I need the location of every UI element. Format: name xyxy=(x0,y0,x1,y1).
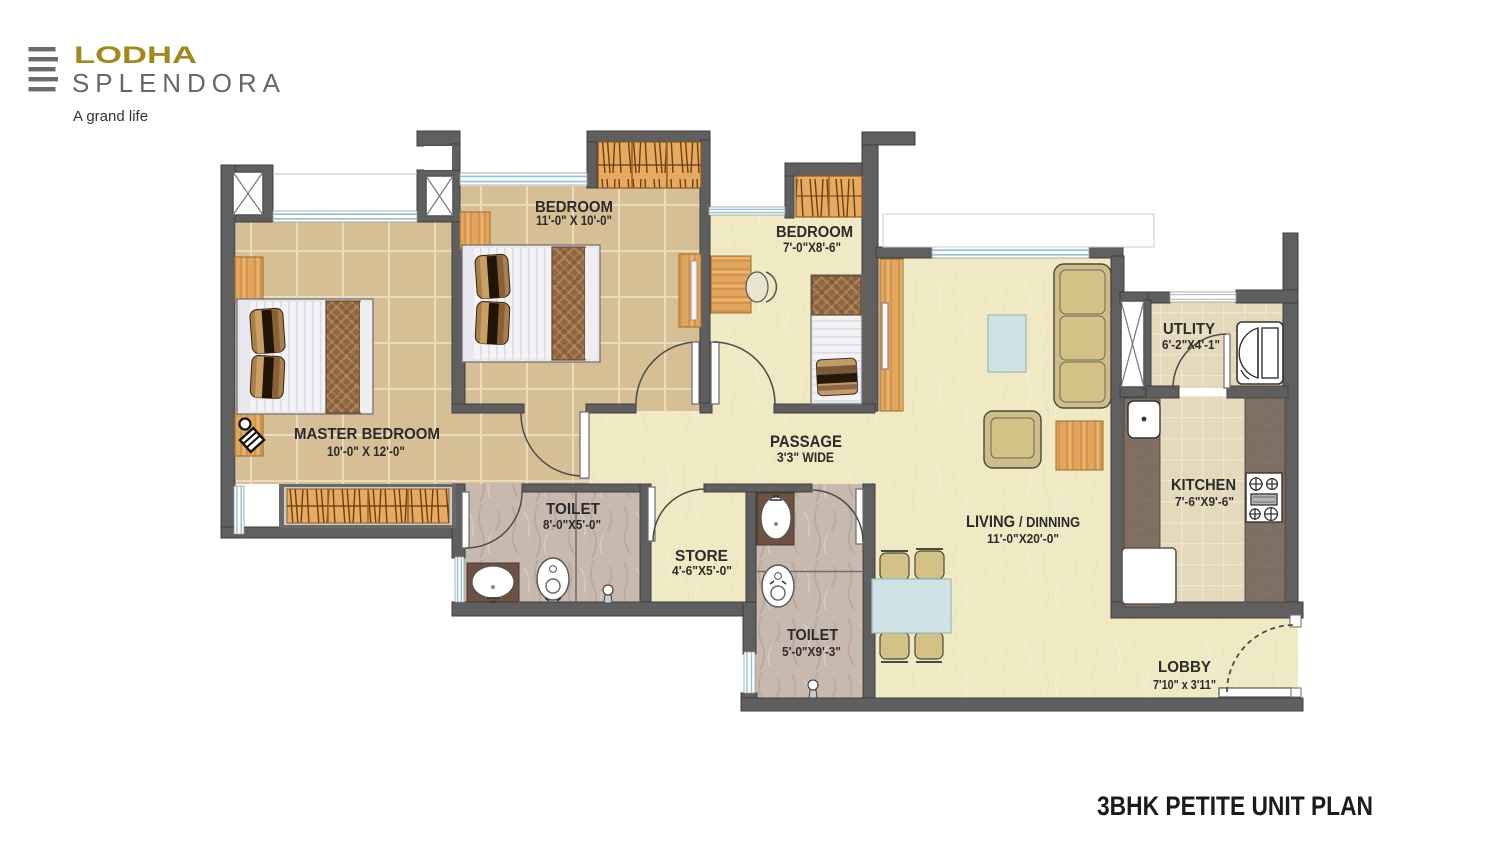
svg-text:TOILET: TOILET xyxy=(787,627,838,644)
svg-text:TOILET: TOILET xyxy=(546,501,600,518)
svg-text:11'-0" X 10'-0": 11'-0" X 10'-0" xyxy=(536,213,612,228)
svg-text:3'3" WIDE: 3'3" WIDE xyxy=(777,450,834,465)
svg-text:UTLITY: UTLITY xyxy=(1163,321,1216,338)
svg-text:5'-0"X9'-3": 5'-0"X9'-3" xyxy=(782,644,841,659)
svg-text:7'-6"X9'-6": 7'-6"X9'-6" xyxy=(1175,494,1234,509)
svg-text:3BHK PETITE UNIT PLAN: 3BHK PETITE UNIT PLAN xyxy=(1097,791,1373,821)
svg-text:LODHA: LODHA xyxy=(74,42,197,69)
svg-text:LOBBY: LOBBY xyxy=(1158,659,1212,676)
svg-text:/ DINNING: / DINNING xyxy=(1019,515,1080,531)
svg-text:11'-0"X20'-0": 11'-0"X20'-0" xyxy=(987,531,1059,546)
svg-text:KITCHEN: KITCHEN xyxy=(1171,477,1236,494)
svg-text:4'-6"X5'-0": 4'-6"X5'-0" xyxy=(672,563,732,578)
svg-text:A grand life: A grand life xyxy=(73,108,148,125)
svg-text:PASSAGE: PASSAGE xyxy=(770,433,842,451)
svg-text:6'-2"X4'-1": 6'-2"X4'-1" xyxy=(1162,338,1220,352)
svg-text:7'-0"X8'-6": 7'-0"X8'-6" xyxy=(783,240,841,255)
svg-text:8'-0"X5'-0": 8'-0"X5'-0" xyxy=(543,517,601,532)
svg-text:7'10" x 3'11": 7'10" x 3'11" xyxy=(1153,677,1216,692)
svg-text:MASTER BEDROOM: MASTER BEDROOM xyxy=(294,426,440,443)
svg-text:BEDROOM: BEDROOM xyxy=(776,224,853,241)
svg-text:10'-0" X 12'-0": 10'-0" X 12'-0" xyxy=(327,444,405,459)
svg-text:SPLENDORA: SPLENDORA xyxy=(72,68,281,98)
svg-text:LIVING: LIVING xyxy=(966,512,1015,531)
